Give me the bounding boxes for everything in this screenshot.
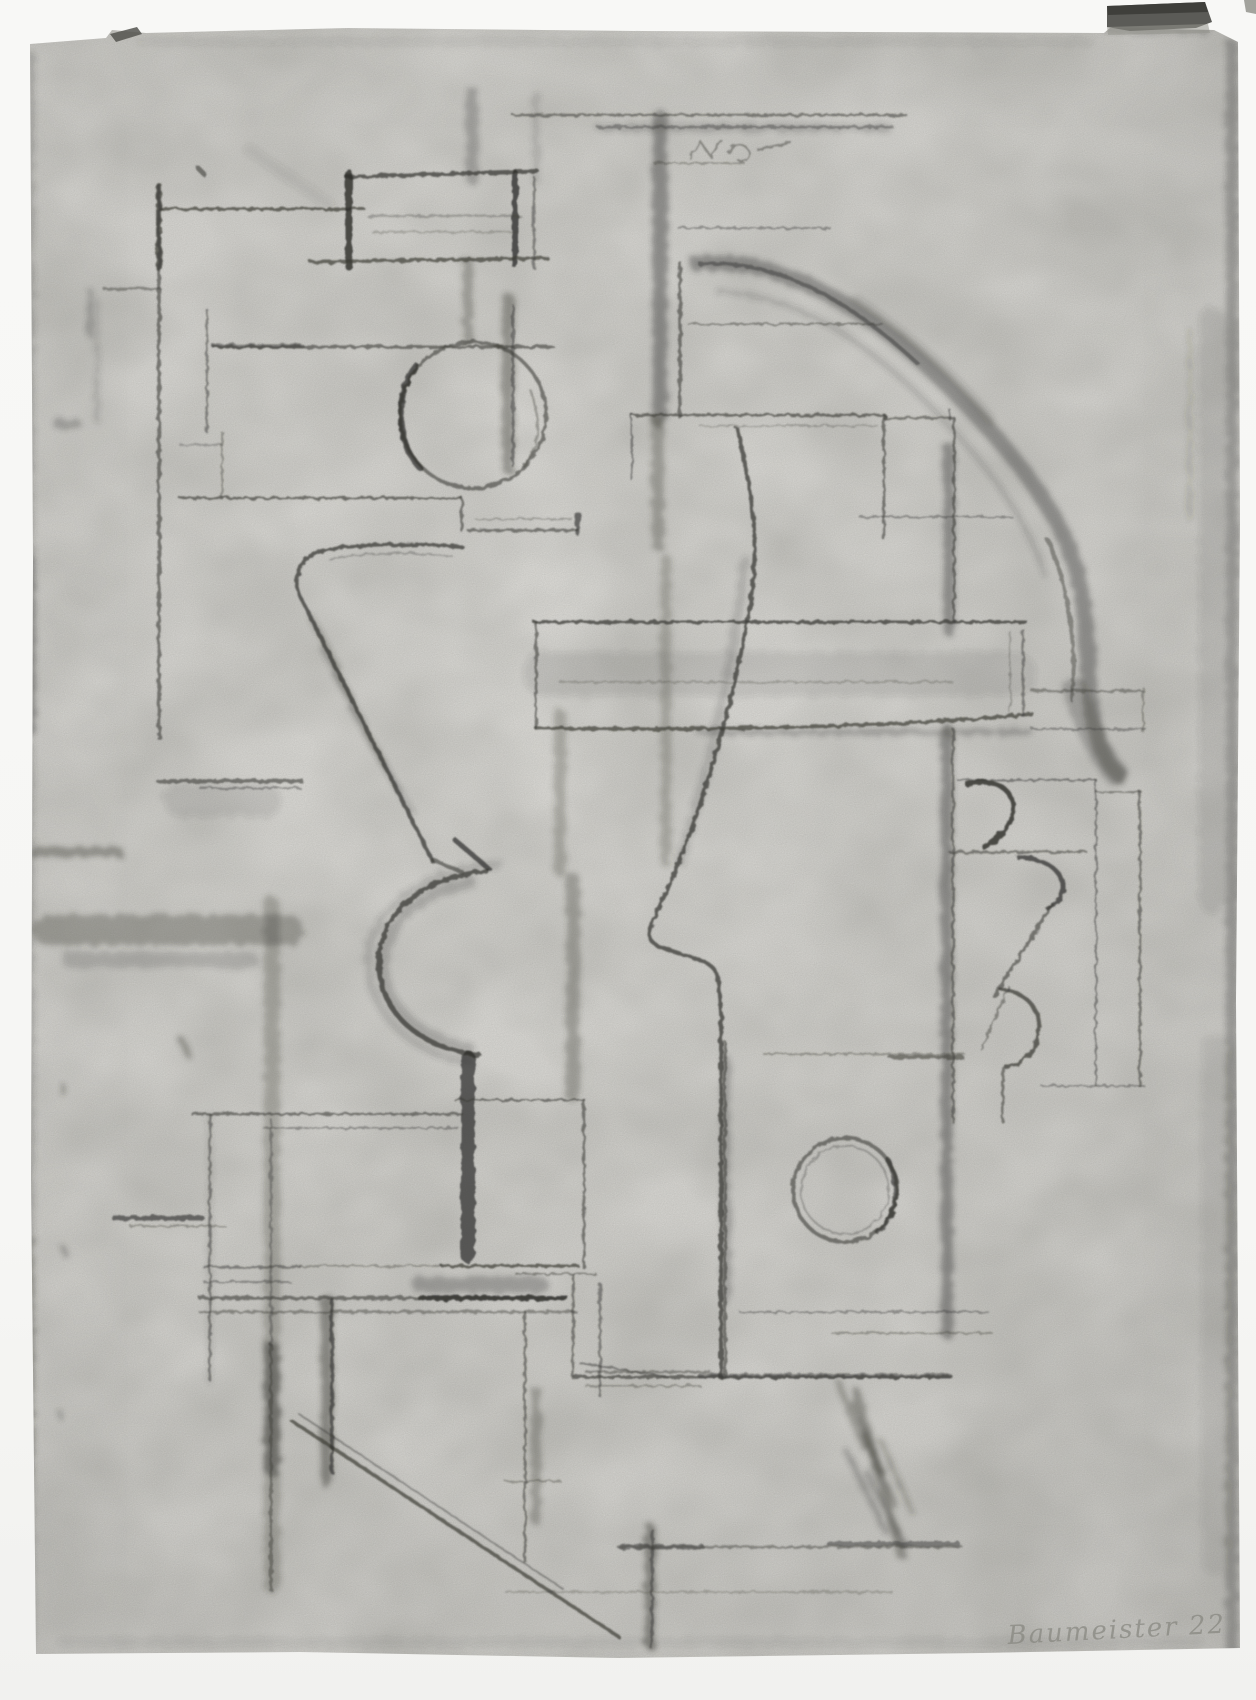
charcoal-stroke bbox=[64, 1248, 66, 1256]
photo-backing: Baumeister 22 bbox=[0, 0, 1256, 1700]
corner-mark bbox=[1244, 0, 1256, 14]
charcoal-stroke bbox=[62, 1085, 64, 1094]
charcoal-stroke bbox=[60, 1412, 62, 1420]
paper-texture bbox=[20, 20, 1246, 1668]
artwork-scan: Baumeister 22 bbox=[0, 0, 1256, 1700]
